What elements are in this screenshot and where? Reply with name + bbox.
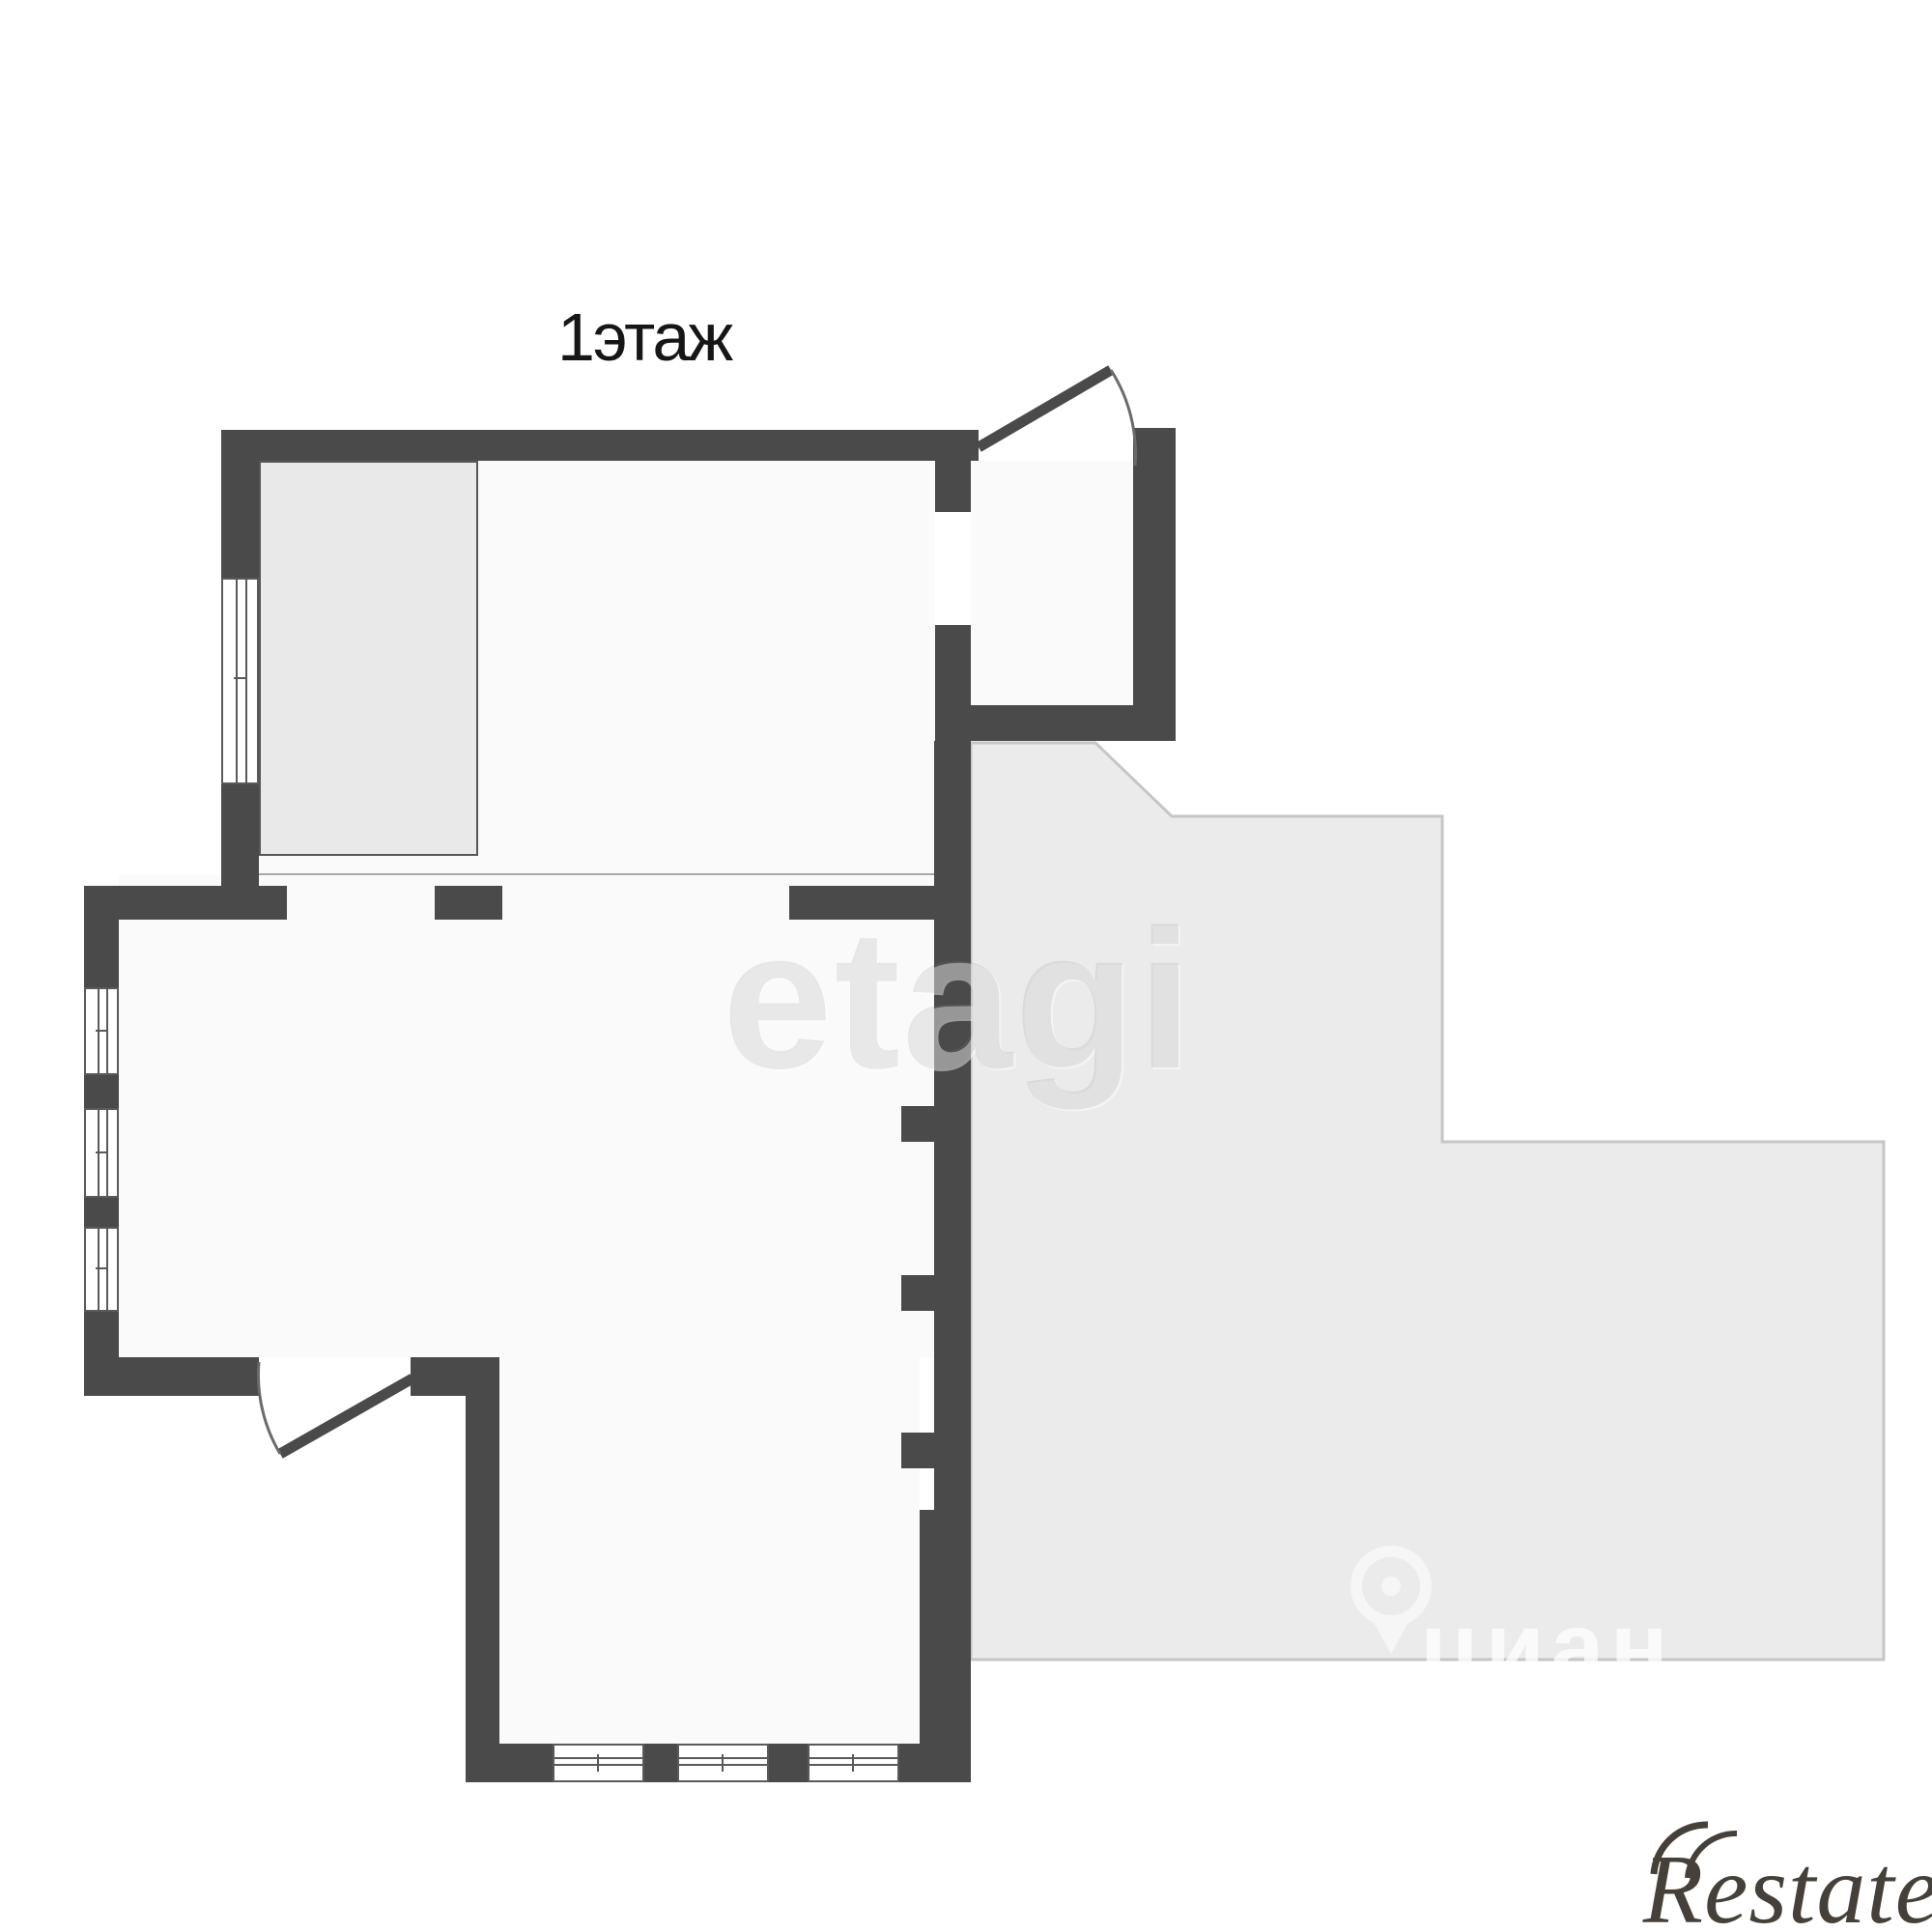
- cian-watermark: циан: [1420, 1592, 1674, 1703]
- etagi-watermark: etagi: [723, 886, 1194, 1114]
- door-leaf: [280, 1378, 412, 1454]
- door-swing-arc: [1111, 370, 1135, 466]
- door-leaf: [979, 370, 1111, 447]
- door-swing-arc: [258, 1362, 280, 1454]
- restate-logo: Restate: [1643, 1833, 1932, 1932]
- location-pin-icon: [1356, 1551, 1426, 1654]
- floorplan-canvas: 1этаж помещение помещение etagi циан Res…: [0, 0, 1932, 1932]
